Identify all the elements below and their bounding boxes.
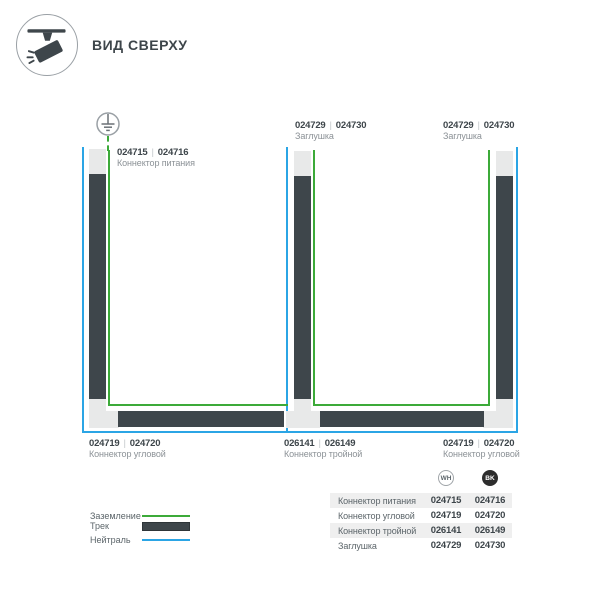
label-tee-connector: 026141|026149 Коннектор тройной	[284, 438, 362, 460]
neutral-line-right	[516, 147, 518, 431]
corner-connector-left	[89, 411, 119, 428]
table-row: Коннектор питания 024715 024716	[330, 493, 512, 508]
track-segment-bottom-right	[320, 411, 484, 427]
neutral-line-left	[82, 147, 84, 431]
neutral-line-bottom	[82, 431, 518, 433]
table-row: Коннектор тройной 026141 026149	[330, 523, 512, 538]
neutral-line-swatch	[142, 539, 190, 541]
legend-item-track: Трек	[90, 521, 190, 531]
ground-line-swatch	[142, 515, 190, 517]
track-segment-left	[89, 174, 106, 399]
ground-line-bottom-left	[108, 404, 288, 406]
ground-lead-dashed-line	[107, 136, 109, 151]
track-segment-bottom-left	[118, 411, 284, 427]
ground-symbol-icon	[95, 111, 121, 137]
page: ВИД СВЕРХУ	[0, 0, 600, 600]
legend: Заземление Трек Нейтраль	[90, 511, 190, 545]
label-corner-connector-right: 024719|024720 Коннектор угловой	[443, 438, 520, 460]
parts-table-header: WH BK	[330, 470, 512, 493]
ground-line-right	[488, 150, 490, 405]
power-connector-piece	[89, 149, 106, 174]
parts-table: WH BK Коннектор питания 024715 024716 Ко…	[330, 470, 512, 553]
legend-item-ground: Заземление	[90, 511, 190, 521]
track-segment-middle	[294, 176, 311, 399]
label-endcap-right: 024729|024730 Заглушка	[443, 120, 514, 142]
table-row: Коннектор угловой 024719 024720	[330, 508, 512, 523]
black-color-badge: BK	[482, 470, 498, 486]
white-color-badge: WH	[438, 470, 454, 486]
ground-line-left	[108, 150, 110, 405]
ground-line-middle	[313, 150, 315, 405]
track-swatch	[142, 522, 190, 531]
tee-connector	[286, 411, 320, 428]
label-endcap-middle: 024729|024730 Заглушка	[295, 120, 366, 142]
track-spotlight-icon	[16, 14, 78, 76]
endcap-piece-middle	[294, 151, 311, 176]
endcap-piece-right	[496, 151, 513, 176]
table-row: Заглушка 024729 024730	[330, 538, 512, 553]
neutral-line-middle	[286, 147, 288, 431]
track-segment-right	[496, 176, 513, 399]
label-power-connector: 024715|024716 Коннектор питания	[117, 147, 195, 169]
legend-item-neutral: Нейтраль	[90, 535, 190, 545]
corner-connector-right	[483, 411, 513, 428]
ground-line-bottom-right	[313, 404, 490, 406]
page-title: ВИД СВЕРХУ	[92, 37, 187, 53]
label-corner-connector-left: 024719|024720 Коннектор угловой	[89, 438, 166, 460]
